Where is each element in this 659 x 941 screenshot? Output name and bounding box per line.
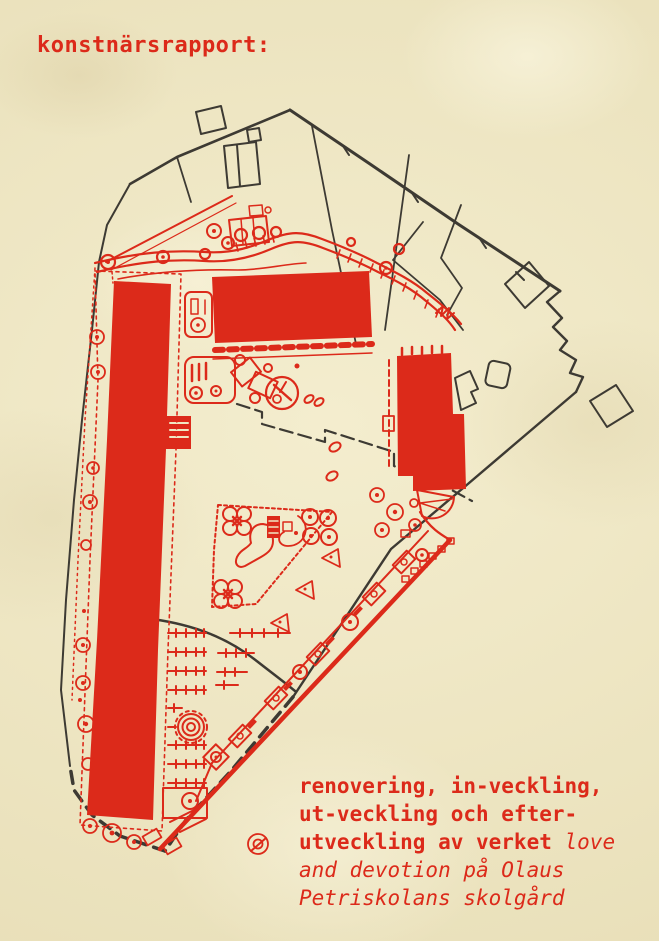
walkway-benches — [229, 551, 416, 748]
caption-line: ut-veckling och efter- — [299, 800, 639, 828]
school-building-center — [185, 271, 372, 359]
school-building-east — [383, 346, 466, 518]
play-structures — [185, 355, 342, 482]
caption-segment: and devotion på Olaus — [299, 858, 565, 882]
caption-segment: utveckling av verket — [299, 830, 565, 854]
flag-markers — [271, 549, 340, 632]
caption-line: and devotion på Olaus — [299, 856, 639, 884]
caption-line: renovering, in-veckling, — [299, 772, 639, 800]
school-building-long-west — [80, 271, 191, 831]
caption: renovering, in-veckling,ut-veckling och … — [299, 772, 639, 912]
page-title: konstnärsrapport: — [37, 33, 271, 58]
caption-segment: renovering, in-veckling, — [299, 774, 602, 798]
caption-segment: love — [565, 830, 616, 854]
flower-icon — [214, 580, 242, 608]
caption-segment: Petriskolans skolgård — [299, 886, 565, 910]
playground-area — [212, 505, 337, 608]
caption-segment: ut-veckling och efter- — [299, 802, 577, 826]
caption-line: Petriskolans skolgård — [299, 884, 639, 912]
flower-icon — [223, 507, 251, 535]
red-ink-layer — [72, 196, 466, 854]
spiral-feature — [175, 711, 207, 743]
caption-line: utveckling av verket love — [299, 828, 639, 856]
